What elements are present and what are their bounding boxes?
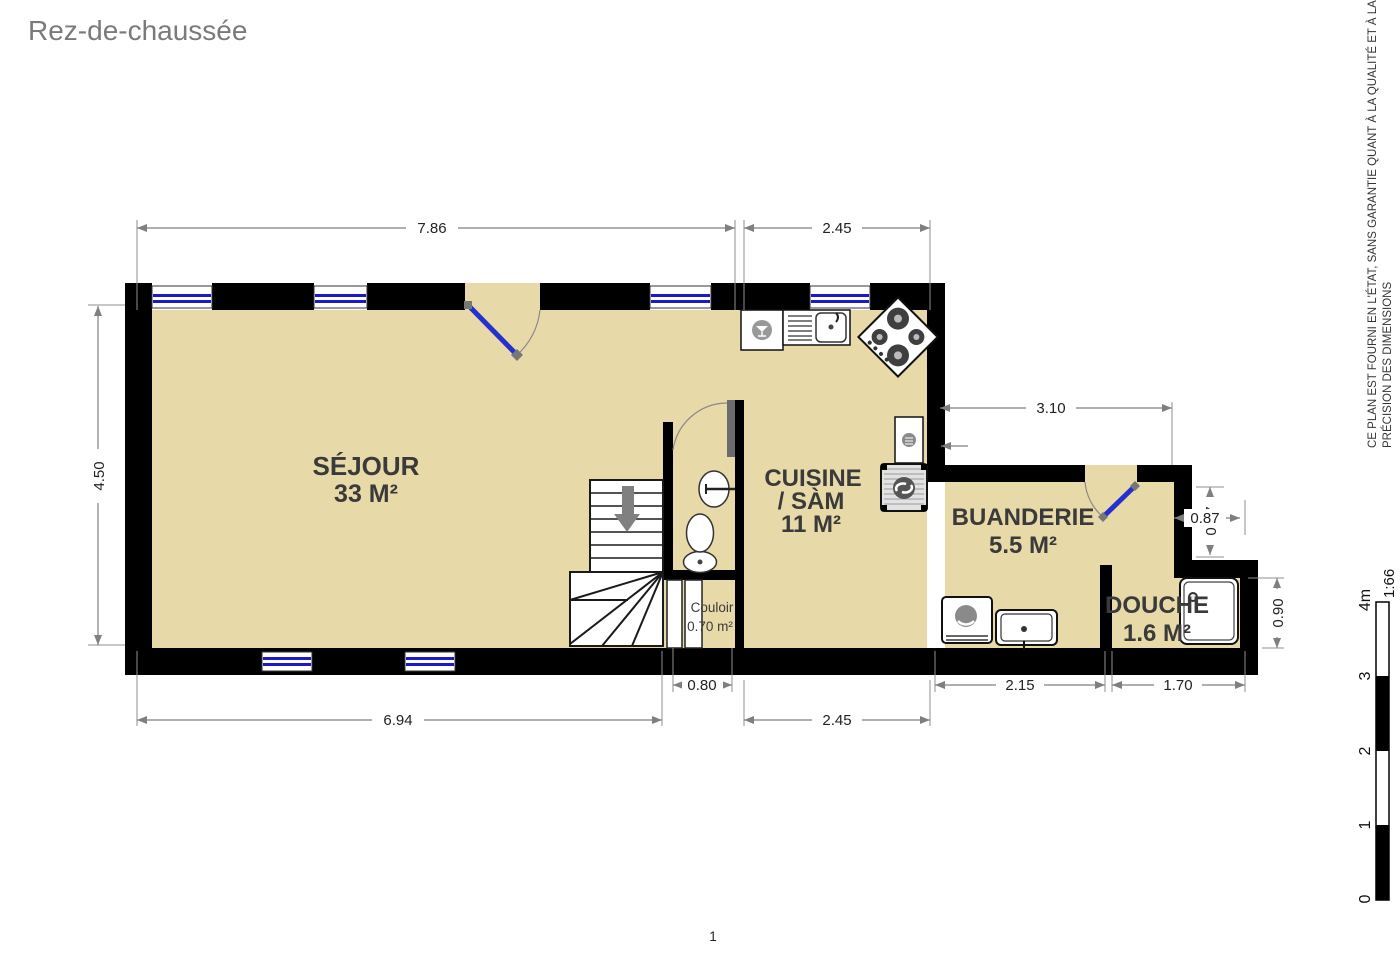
svg-text:2.45: 2.45	[822, 712, 851, 729]
dimension-sejour-left: 4.50	[88, 305, 125, 645]
floor-buanderie-door-opening	[1085, 465, 1137, 482]
dishwasher-icon	[741, 310, 783, 350]
svg-text:2.45: 2.45	[822, 220, 851, 237]
room-label-couloir: Couloir	[691, 600, 734, 615]
kitchen-sink-icon	[783, 310, 850, 345]
door-jamb	[727, 400, 735, 457]
room-area-buanderie: 5.5 M²	[989, 532, 1057, 559]
room-area-couloir: 0.70 m²	[687, 619, 733, 634]
window-icon	[810, 286, 870, 308]
wall-douche-left-stub	[1100, 565, 1112, 675]
room-area-cuisine: 11 M²	[781, 511, 841, 538]
washing-machine-icon	[942, 597, 992, 643]
room-label-douche: DOUCHE	[1105, 592, 1209, 619]
floor-plan-canvas: Rez-de-chaussée	[0, 0, 1400, 953]
floor-plan-page: Rez-de-chaussée	[0, 0, 1400, 953]
laundry-sink-icon	[996, 610, 1057, 650]
svg-text:4.50: 4.50	[91, 461, 108, 490]
wall-wc-left	[663, 422, 673, 572]
wall-couloir-right	[735, 400, 744, 648]
svg-text:3.10: 3.10	[1036, 400, 1065, 417]
scale-ratio: 1:66	[1381, 569, 1398, 598]
dimension-cuisine-bottom: 2.45	[744, 680, 930, 729]
toilet-icon	[684, 514, 717, 573]
wall-douche-right	[1240, 560, 1258, 675]
water-heater-icon	[881, 464, 927, 511]
wall-top-seg	[367, 283, 465, 310]
fridge-icon	[895, 417, 923, 463]
disclaimer-line-2: PRÉCISION DES DIMENSIONS	[1381, 282, 1394, 448]
room-area-douche: 1.6 M²	[1123, 620, 1191, 647]
window-icon	[314, 286, 367, 308]
window-icon	[262, 652, 312, 671]
scale-tick-0: 0	[1357, 894, 1374, 903]
scale-tick-3: 3	[1357, 671, 1374, 680]
disclaimer: CE PLAN EST FOURNI EN L'ÉTAT, SANS GARAN…	[1366, 0, 1394, 448]
scale-tick-2: 2	[1357, 746, 1374, 755]
wall-top-seg	[212, 283, 314, 310]
disclaimer-line-1: CE PLAN EST FOURNI EN L'ÉTAT, SANS GARAN…	[1366, 0, 1379, 448]
room-area-sejour: 33 M²	[334, 480, 398, 508]
wall-top-seg	[540, 283, 650, 310]
room-label-buanderie: BUANDERIE	[952, 504, 1095, 531]
room-label-sejour: SÉJOUR	[313, 451, 420, 481]
wall-kitchen-right	[927, 283, 945, 482]
svg-text:2.15: 2.15	[1005, 677, 1034, 694]
wall-left	[125, 283, 152, 675]
dimension-buanderie-top: 3.10	[940, 399, 1172, 465]
wall-buanderie-top	[945, 465, 1085, 482]
floor-entrance-opening	[465, 283, 540, 310]
svg-text:1.70: 1.70	[1163, 677, 1192, 694]
svg-text:0.90: 0.90	[1270, 598, 1287, 627]
door-hinge	[464, 301, 472, 309]
window-icon	[405, 652, 455, 671]
window-icon	[650, 286, 711, 308]
scale-bar: 0 1 2 3 4m 1:66	[1357, 569, 1398, 904]
svg-text:6.94: 6.94	[383, 712, 412, 729]
scale-tick-1: 1	[1357, 820, 1374, 829]
window-icon	[152, 286, 212, 308]
wall-top-seg	[711, 283, 810, 310]
svg-text:0.87: 0.87	[1190, 510, 1219, 527]
svg-text:0.80: 0.80	[687, 677, 716, 694]
page-number: 1	[709, 929, 717, 944]
scale-tick-4m: 4m	[1357, 589, 1374, 611]
page-title: Rez-de-chaussée	[28, 15, 247, 46]
svg-text:7.86: 7.86	[417, 220, 446, 237]
